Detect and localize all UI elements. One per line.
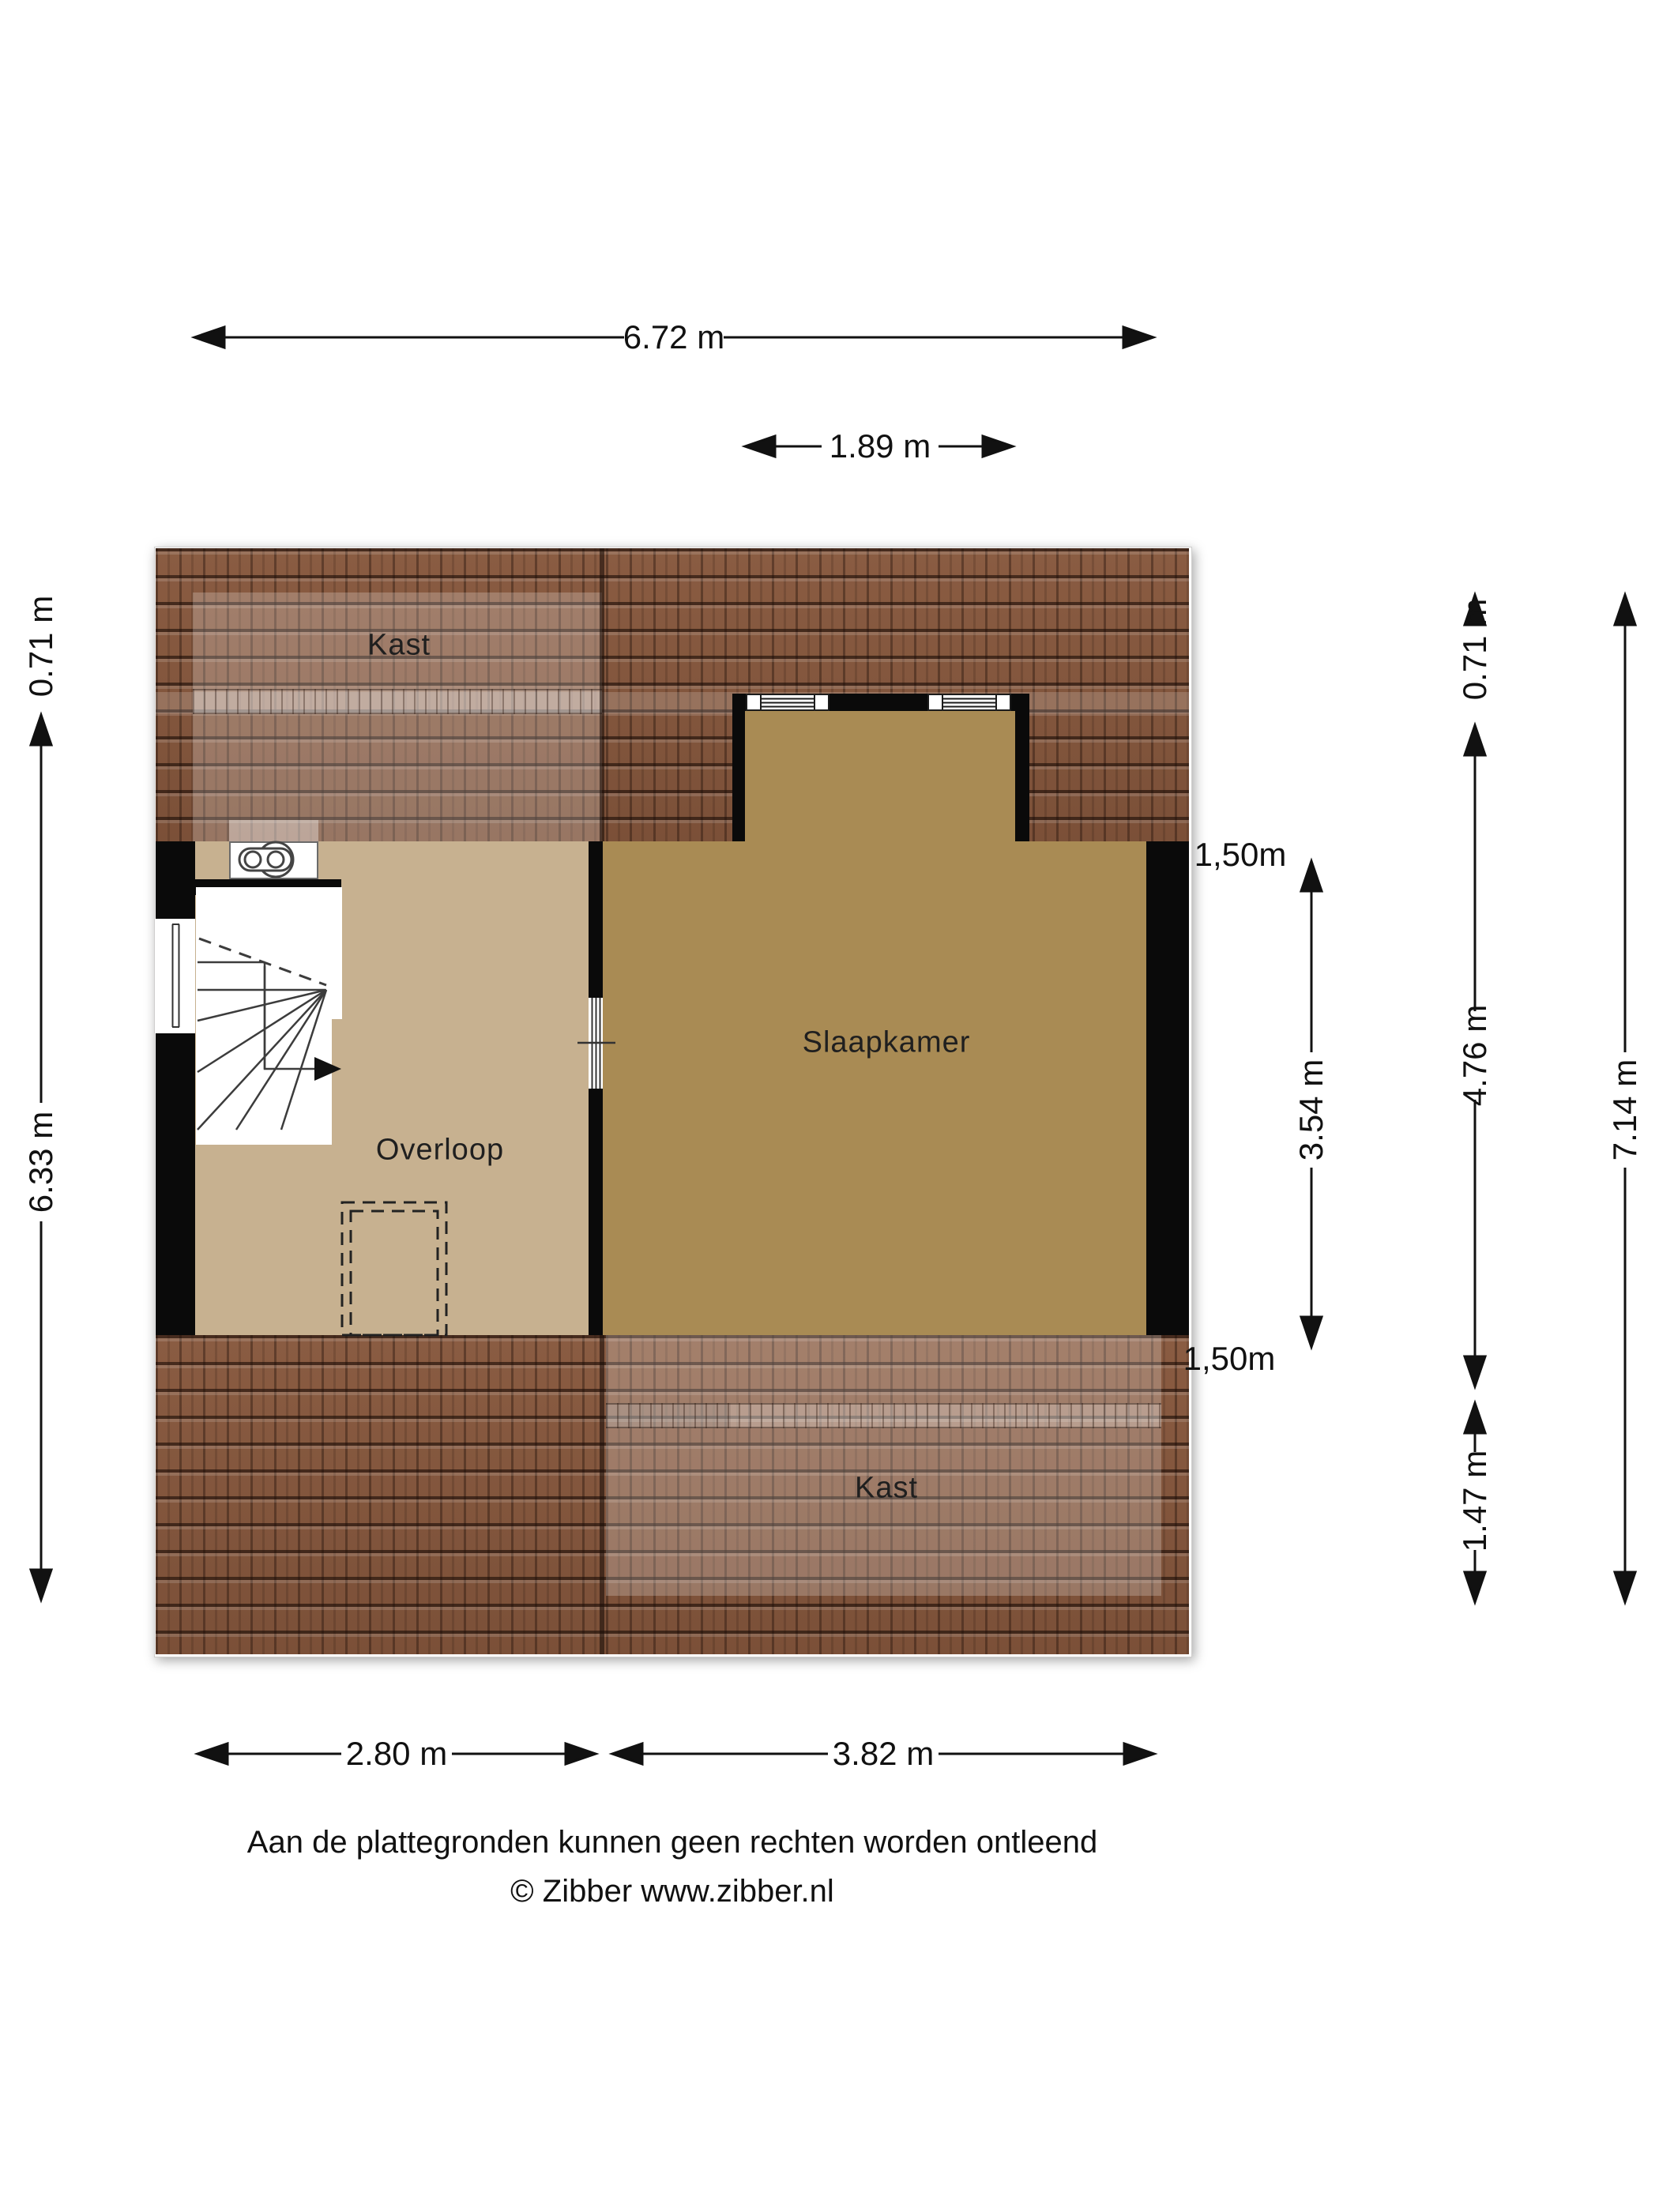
footer-disclaimer: Aan de plattegronden kunnen geen rechten… xyxy=(154,1825,1191,1860)
boiler-unit xyxy=(229,841,318,879)
dim-right-total: 7.14 m xyxy=(1606,1059,1644,1161)
left-wall-window xyxy=(156,919,195,1033)
dormer-window-right xyxy=(927,694,1011,711)
dim-bottom-left: 2.80 m xyxy=(346,1735,447,1773)
dormer-left-wall xyxy=(732,694,745,841)
room-label-overloop: Overloop xyxy=(376,1134,504,1168)
divider-wall-lower xyxy=(589,1089,603,1335)
room-label-kast-top: Kast xyxy=(367,629,431,663)
dim-knee-wall-bottom: 1,50m xyxy=(1183,1340,1276,1378)
roof-divider-line-bottom xyxy=(600,1335,604,1654)
staircase xyxy=(196,887,342,1145)
kast-top-hatch-band xyxy=(193,689,602,714)
dim-left-height: 6.33 m xyxy=(22,1112,60,1213)
divider-wall-upper xyxy=(589,841,603,998)
dormer-window-left xyxy=(746,694,829,711)
right-exterior-wall xyxy=(1146,841,1189,1335)
dormer-right-wall xyxy=(1015,694,1029,841)
dim-knee-wall-top: 1,50m xyxy=(1194,836,1287,874)
dim-right-eave: 0.71 m xyxy=(1456,599,1494,700)
left-wall-lower xyxy=(156,1033,195,1335)
kast-bottom-hatch-shade xyxy=(606,1403,731,1428)
dim-right-main: 4.76 m xyxy=(1456,1005,1494,1106)
roof-divider-line-top xyxy=(600,548,604,841)
dim-left-eave: 0.71 m xyxy=(22,596,60,697)
floorplan-page: Kast Slaapkamer Overloop Kast 6.72 m 1.8… xyxy=(0,0,1659,2212)
room-label-slaapkamer: Slaapkamer xyxy=(803,1026,971,1060)
room-label-kast-bottom: Kast xyxy=(855,1472,918,1506)
dim-bottom-right: 3.82 m xyxy=(833,1735,934,1773)
boiler-ghost-above-roofline xyxy=(229,820,318,841)
dim-top-width: 6.72 m xyxy=(623,318,724,356)
dim-right-lower: 1.47 m xyxy=(1456,1450,1494,1552)
kast-bottom-area xyxy=(606,1335,1161,1596)
dim-dormer-width: 1.89 m xyxy=(829,427,931,465)
door-slaapkamer xyxy=(589,998,603,1089)
footer-copyright: © Zibber www.zibber.nl xyxy=(154,1874,1191,1909)
slaapkamer-floor xyxy=(603,841,1146,1335)
dim-bedroom-depth: 3.54 m xyxy=(1292,1059,1330,1161)
dormer-floor xyxy=(745,711,1015,841)
left-wall-upper xyxy=(156,841,195,919)
